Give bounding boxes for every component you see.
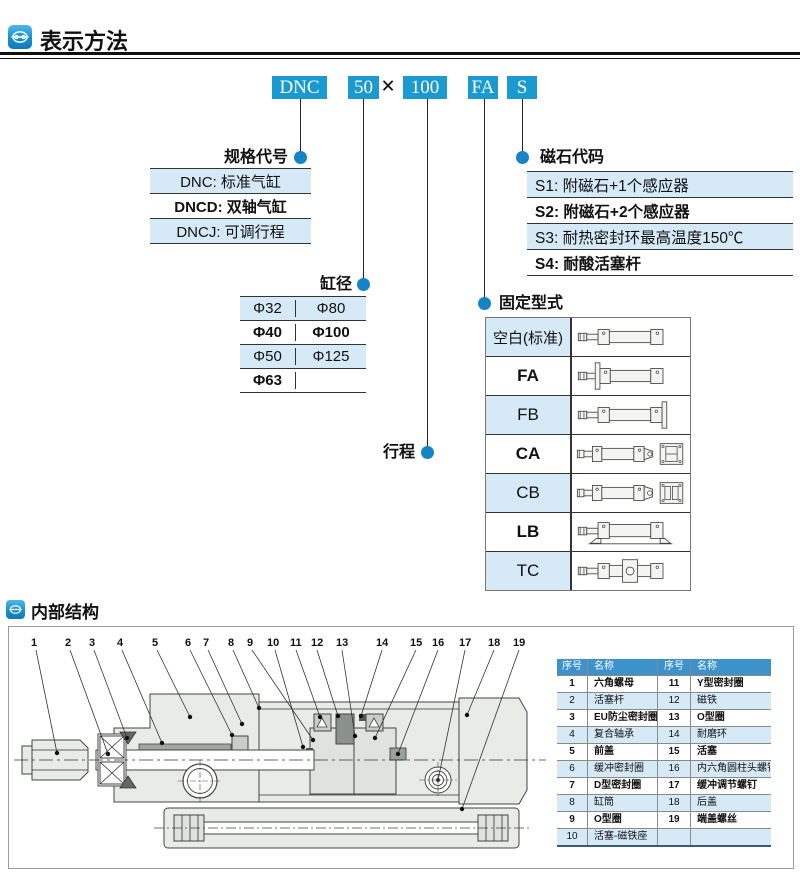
cylinder-cross-section-diagram: 1 2 3 4 5 6 7 8 9 10 11 12 13 14 15 16 1…: [14, 632, 554, 862]
spec-code-row: DNCJ: 可调行程: [150, 219, 311, 244]
magnet-code-row: S3: 耐热密封环最高温度150℃: [527, 224, 793, 250]
dot-spec: [294, 151, 307, 164]
part-no: 16: [658, 761, 691, 777]
callout-number: 8: [228, 637, 234, 649]
cylinder-logo-icon: [9, 603, 22, 616]
callout-number: 2: [65, 637, 71, 649]
part-no: 6: [557, 761, 588, 777]
bore-cell: Φ125: [296, 348, 366, 365]
parts-table-header: 序号 名称 序号 名称: [557, 659, 771, 675]
section-logo-icon: [8, 25, 32, 49]
part-no: [658, 829, 691, 845]
bore-cell: Φ63: [240, 372, 296, 389]
part-no: 14: [658, 727, 691, 743]
catalog-page: 表示方法 DNC 50 × 100 FA S 规格代号 DNC: 标准气缸 DN…: [0, 0, 800, 876]
parts-header-cell: 名称: [691, 659, 770, 675]
part-no: 10: [557, 829, 588, 845]
mounting-diagram-lb: [572, 513, 690, 551]
callout-number: 18: [488, 637, 500, 649]
part-no: 11: [658, 676, 691, 692]
part-name: 缓冲密封圈: [588, 761, 658, 777]
callout-number: 16: [432, 637, 444, 649]
mounting-row-label: CA: [486, 435, 572, 473]
parts-table-row: 3 EU防尘密封圈 13 O型圈: [557, 709, 771, 726]
callout-number: 4: [117, 637, 124, 649]
parts-table-row: 6 缓冲密封圈 16 内六角圆柱头螺钉: [557, 760, 771, 777]
part-no: 19: [658, 812, 691, 828]
callout-number: 10: [267, 637, 279, 649]
mounting-diagram-tc: [572, 552, 690, 590]
connector-line-stroke: [427, 99, 428, 447]
callout-number: 12: [311, 637, 323, 649]
part-name: 磁铁: [691, 693, 770, 709]
mounting-diagram-standard: [572, 318, 690, 356]
part-no: 15: [658, 744, 691, 760]
model-code-bore: 50: [348, 76, 379, 99]
part-name: 耐磨环: [691, 727, 770, 743]
part-name: 内六角圆柱头螺钉: [691, 761, 770, 777]
callout-number: 19: [513, 637, 525, 649]
parts-table-row: 2 活塞杆 12 磁铁: [557, 692, 771, 709]
parts-table-row: 5 前盖 15 活塞: [557, 743, 771, 760]
bore-cell: Φ40: [240, 324, 296, 341]
mounting-row-label: 空白(标准): [486, 318, 572, 356]
part-name: 活塞杆: [588, 693, 658, 709]
mounting-diagram-fa: [572, 357, 690, 395]
parts-table: 序号 名称 序号 名称 1 六角螺母 11 Y型密封圈 2 活塞杆 12 磁铁 …: [557, 659, 771, 847]
spec-code-table: DNC: 标准气缸 DNCD: 双轴气缸 DNCJ: 可调行程: [150, 168, 311, 244]
internal-structure-title: 内部结构: [31, 598, 99, 623]
parts-header-cell: 序号: [557, 659, 588, 675]
callout-number: 15: [410, 637, 422, 649]
bore-cell: Φ100: [296, 324, 366, 341]
part-no: 18: [658, 795, 691, 811]
callout-number: 6: [185, 637, 191, 649]
bore-cell: Φ32: [240, 300, 296, 317]
part-name: 端盖螺丝: [691, 812, 770, 828]
callout-number: 5: [152, 637, 158, 649]
part-name: 复合轴承: [588, 727, 658, 743]
model-code-magnet: S: [507, 76, 537, 99]
part-no: 5: [557, 744, 588, 760]
mounting-label: 固定型式: [499, 295, 563, 313]
part-name: 缓冲调节螺钉: [691, 778, 770, 794]
part-no: 9: [557, 812, 588, 828]
header-divider: [0, 52, 800, 59]
part-name: EU防尘密封圈: [588, 710, 658, 726]
part-name: O型圈: [588, 812, 658, 828]
model-code-stroke: 100: [403, 76, 447, 99]
callout-number: 13: [336, 637, 348, 649]
callout-number: 17: [459, 637, 471, 649]
magnet-code-label: 磁石代码: [540, 149, 604, 167]
part-name: 活塞-磁铁座: [588, 829, 658, 845]
connector-line-magnet: [522, 99, 523, 152]
mounting-diagram-ca: [572, 435, 690, 473]
parts-header-cell: 名称: [588, 659, 658, 675]
part-name: O型圈: [691, 710, 770, 726]
connector-line-spec: [300, 99, 301, 152]
part-name: 六角螺母: [588, 676, 658, 692]
part-no: 12: [658, 693, 691, 709]
part-name: 后盖: [691, 795, 770, 811]
part-name: [691, 829, 770, 845]
part-name: Y型密封圈: [691, 676, 770, 692]
bore-table: Φ32 Φ80 Φ40 Φ100 Φ50 Φ125 Φ63: [240, 296, 366, 393]
parts-table-row: 10 活塞-磁铁座: [557, 828, 771, 845]
part-no: 8: [557, 795, 588, 811]
parts-table-row: 1 六角螺母 11 Y型密封圈: [557, 675, 771, 692]
part-no: 4: [557, 727, 588, 743]
mounting-row-label: CB: [486, 474, 572, 512]
model-code-times: ×: [381, 74, 395, 99]
dot-bore: [357, 278, 370, 291]
callout-number: 14: [376, 637, 389, 649]
spec-code-row: DNC: 标准气缸: [150, 169, 311, 194]
bore-label: 缸径: [290, 276, 352, 294]
parts-table-row: 7 D型密封圈 17 缓冲调节螺钉: [557, 777, 771, 794]
mounting-row-label: FA: [486, 357, 572, 395]
part-no: 3: [557, 710, 588, 726]
magnet-code-row: S1: 附磁石+1个感应器: [527, 172, 793, 198]
dot-stroke: [421, 446, 434, 459]
mounting-table: 空白(标准) FA: [485, 317, 691, 591]
model-code-mounting: FA: [468, 76, 498, 99]
connector-line-bore: [363, 99, 364, 279]
callout-number: 7: [203, 637, 209, 649]
magnet-code-table: S1: 附磁石+1个感应器 S2: 附磁石+2个感应器 S3: 耐热密封环最高温…: [527, 171, 793, 276]
connector-line-mounting: [484, 99, 485, 298]
parts-table-row: 9 O型圈 19 端盖螺丝: [557, 811, 771, 828]
parts-table-row: 4 复合轴承 14 耐磨环: [557, 726, 771, 743]
magnet-code-row: S4: 耐酸活塞杆: [527, 250, 793, 276]
mounting-row-label: LB: [486, 513, 572, 551]
bore-cell: Φ80: [296, 300, 366, 317]
callout-number: 1: [31, 637, 37, 649]
callout-number: 3: [89, 637, 95, 649]
spec-code-label: 规格代号: [200, 149, 288, 167]
part-no: 17: [658, 778, 691, 794]
part-name: 活塞: [691, 744, 770, 760]
callout-number: 11: [290, 637, 302, 649]
dot-magnet: [516, 151, 529, 164]
part-name: 前盖: [588, 744, 658, 760]
mounting-diagram-cb: [572, 474, 690, 512]
spec-code-row: DNCD: 双轴气缸: [150, 194, 311, 219]
cylinder-logo-icon: [11, 28, 29, 46]
part-no: 7: [557, 778, 588, 794]
part-name: D型密封圈: [588, 778, 658, 794]
part-no: 2: [557, 693, 588, 709]
parts-table-row: 8 缸筒 18 后盖: [557, 794, 771, 811]
part-no: 13: [658, 710, 691, 726]
part-name: 缸筒: [588, 795, 658, 811]
mounting-row-label: FB: [486, 396, 572, 434]
stroke-label: 行程: [365, 444, 415, 462]
model-code-series: DNC: [272, 76, 327, 99]
magnet-code-row: S2: 附磁石+2个感应器: [527, 198, 793, 224]
section2-logo-icon: [6, 600, 25, 619]
callout-number: 9: [247, 637, 253, 649]
mounting-diagram-fb: [572, 396, 690, 434]
mounting-row-label: TC: [486, 552, 572, 590]
dot-mounting: [478, 297, 491, 310]
parts-header-cell: 序号: [658, 659, 691, 675]
bore-cell: Φ50: [240, 348, 296, 365]
part-no: 1: [557, 676, 588, 692]
